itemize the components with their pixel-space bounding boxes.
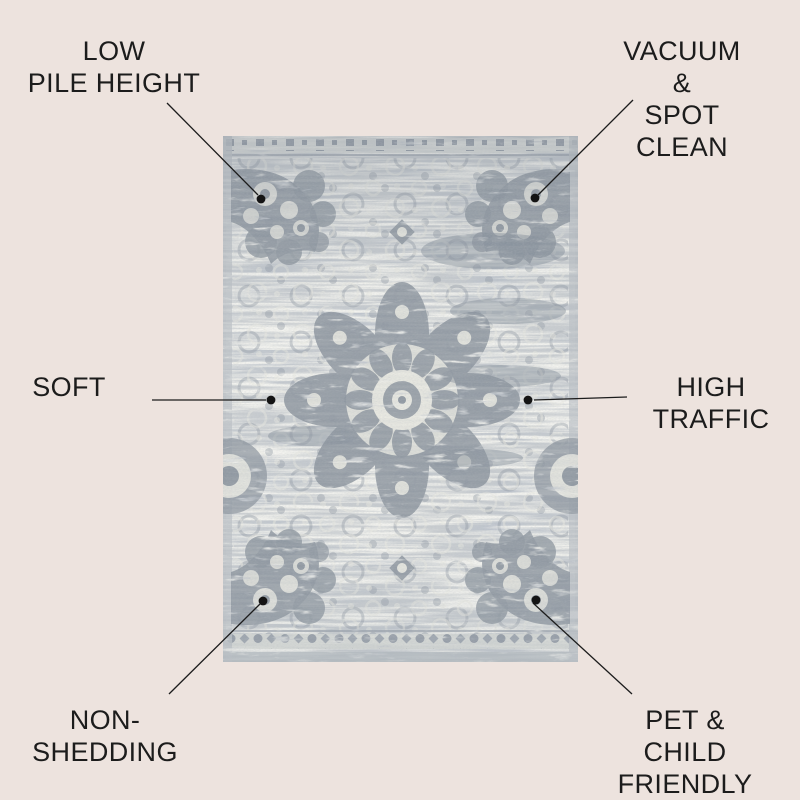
rug-image-container [223,136,578,662]
callout-label-pet-child-friendly: PET & CHILD FRIENDLY [618,704,753,800]
callout-label-high-traffic: HIGH TRAFFIC [653,371,770,435]
callout-label-vacuum-spot-clean: VACUUM & SPOT CLEAN [623,35,741,163]
rug-feature-infographic: LOW PILE HEIGHT VACUUM & SPOT CLEAN SOFT… [0,0,800,800]
callout-label-non-shedding: NON- SHEDDING [32,704,178,768]
callout-label-low-pile-height: LOW PILE HEIGHT [28,35,200,99]
callout-label-soft: SOFT [32,371,106,403]
rug-image [223,136,578,662]
